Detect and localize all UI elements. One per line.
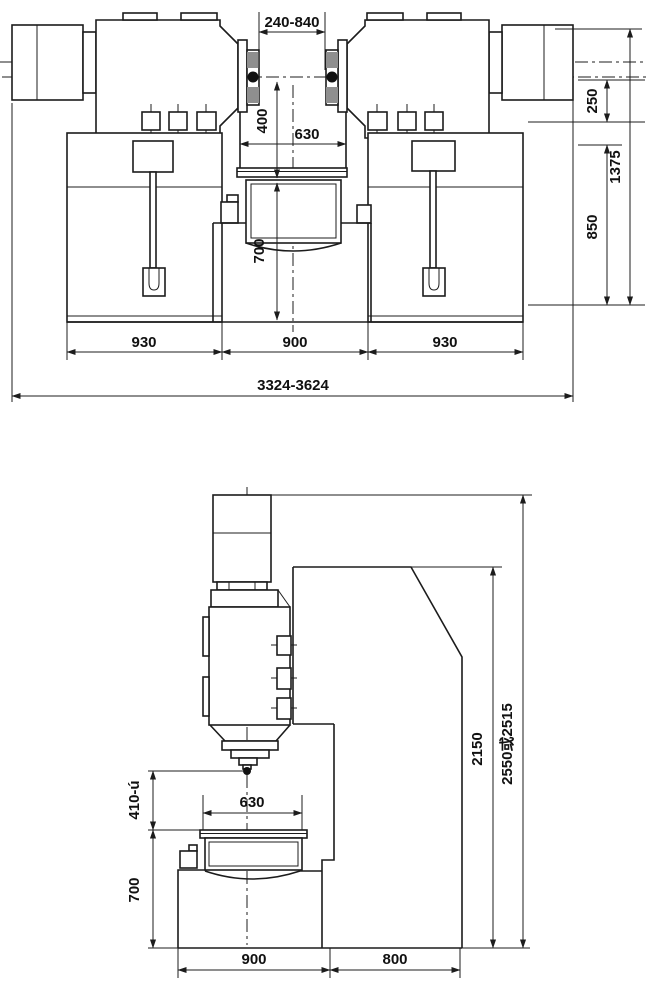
workpiece-box-front bbox=[246, 180, 341, 243]
tool-tip bbox=[243, 767, 251, 775]
right-handle bbox=[423, 268, 445, 296]
left-machine bbox=[12, 13, 259, 322]
right-clamp-block bbox=[357, 205, 371, 223]
side-table-assembly bbox=[178, 830, 322, 948]
left-spindle-flange bbox=[238, 40, 247, 112]
dim-column-depth: 800 bbox=[382, 951, 407, 968]
front-view: 240-840 400 630 700 250 850 1375 930 900… bbox=[0, 12, 646, 402]
c-frame-column bbox=[293, 567, 462, 948]
spindle-nose-plate bbox=[222, 741, 278, 750]
dim-center-to-table: 400 bbox=[254, 108, 271, 133]
side-mount-plate bbox=[211, 590, 278, 607]
dim-bed-height: 850 bbox=[584, 214, 601, 239]
left-handle bbox=[143, 268, 165, 296]
right-spindle-center bbox=[327, 72, 338, 83]
left-control-box bbox=[133, 141, 173, 172]
side-motor bbox=[213, 495, 271, 582]
tool-holder bbox=[239, 758, 257, 765]
dim-overall-width: 3324-3624 bbox=[257, 377, 329, 394]
right-control-box bbox=[412, 141, 455, 171]
dim-table-height-side: 700 bbox=[126, 877, 143, 902]
side-view: 410-ú 700 630 900 800 2150 2550或2515 bbox=[126, 487, 532, 978]
dim-left-bed-width: 930 bbox=[131, 334, 156, 351]
dim-table-width-front: 630 bbox=[294, 126, 319, 143]
dim-table-width-side: 630 bbox=[239, 794, 264, 811]
dim-center-width: 900 bbox=[282, 334, 307, 351]
dim-spindle-gap: 240-840 bbox=[264, 14, 319, 31]
dim-right-bed-width: 930 bbox=[432, 334, 457, 351]
right-spindle-flange bbox=[338, 40, 347, 112]
dim-overall-height-front: 1375 bbox=[607, 150, 624, 183]
right-coupling bbox=[489, 32, 502, 93]
side-head-unit bbox=[203, 495, 297, 775]
dim-overall-height-side: 2550或2515 bbox=[498, 703, 516, 785]
dim-spindle-to-bed: 250 bbox=[584, 88, 601, 113]
left-lever bbox=[150, 172, 156, 268]
engineering-drawing: 240-840 400 630 700 250 850 1375 930 900… bbox=[0, 0, 650, 1008]
right-machine bbox=[326, 13, 573, 322]
left-clamp-block bbox=[221, 202, 238, 223]
right-lever bbox=[430, 171, 436, 268]
left-spindle-center bbox=[248, 72, 259, 83]
left-motor bbox=[12, 25, 83, 100]
dim-table-height-front: 700 bbox=[251, 238, 268, 263]
right-motor bbox=[502, 25, 573, 100]
dim-base-width: 900 bbox=[241, 951, 266, 968]
table-top-front bbox=[237, 168, 347, 177]
dim-column-height: 2150 bbox=[469, 732, 486, 765]
drawing-svg: 240-840 400 630 700 250 850 1375 930 900… bbox=[0, 0, 650, 1008]
left-coupling bbox=[83, 32, 96, 93]
side-clamp-block bbox=[180, 851, 197, 868]
dim-stroke-range: 410-ú bbox=[126, 780, 143, 819]
workpiece-box-side bbox=[205, 838, 302, 870]
